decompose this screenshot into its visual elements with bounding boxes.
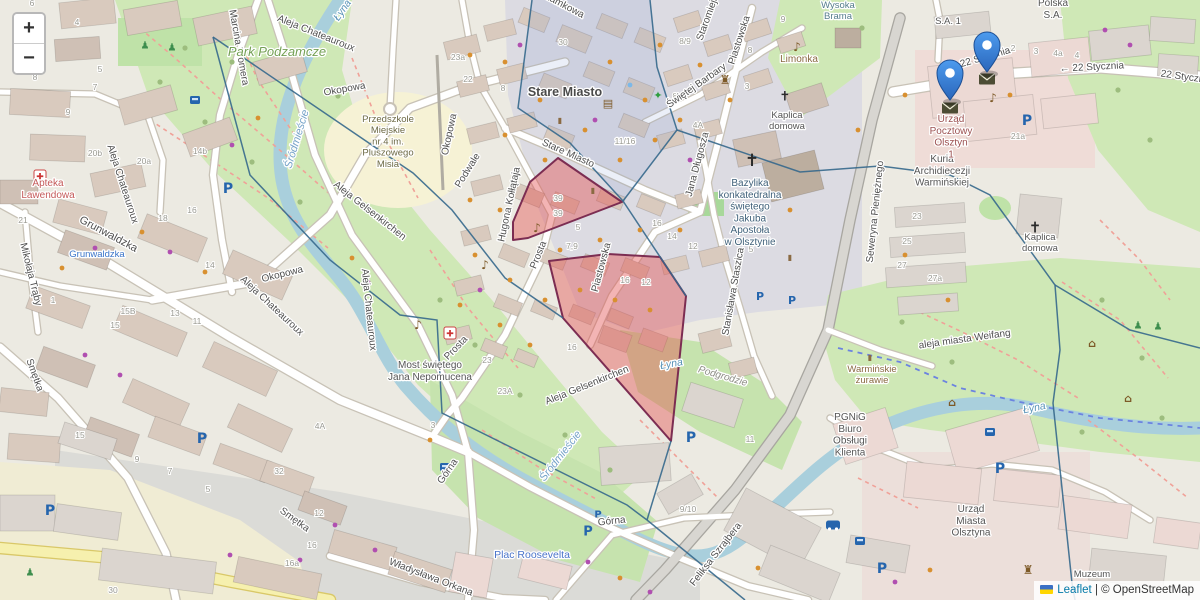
poi-dot bbox=[298, 558, 303, 563]
poi-dot bbox=[643, 98, 648, 103]
bus-stop-icon bbox=[192, 98, 198, 100]
poi-dot bbox=[648, 308, 653, 313]
zoom-out-button[interactable]: − bbox=[14, 44, 44, 73]
tree-dot bbox=[472, 342, 477, 347]
poi-dot bbox=[758, 228, 763, 233]
poi-dot bbox=[586, 560, 591, 565]
poi-dot bbox=[93, 246, 98, 251]
tree-dot bbox=[899, 319, 904, 324]
poi-dot bbox=[856, 128, 861, 133]
bus-stop-icon bbox=[442, 465, 448, 467]
tree-dot bbox=[949, 359, 954, 364]
poi-dot bbox=[1103, 28, 1108, 33]
tree-dot bbox=[437, 297, 442, 302]
poi-dot bbox=[903, 253, 908, 258]
poi-dot bbox=[468, 53, 473, 58]
poi-dot bbox=[458, 303, 463, 308]
car-sharing-icon bbox=[835, 527, 838, 530]
tree-dot bbox=[562, 432, 567, 437]
map-canvas[interactable]: ♪♪♪♪♪▤♜♜✝✝✝▮▮▮▮⌂⌂⌂♟♟♟♟♟✦PPPPPPPPPPP✚✚645… bbox=[0, 0, 1200, 600]
poi-dot bbox=[60, 266, 65, 271]
poi-dot bbox=[538, 98, 543, 103]
building bbox=[9, 88, 70, 117]
building bbox=[7, 433, 61, 463]
poi-dot bbox=[503, 133, 508, 138]
building bbox=[0, 180, 38, 204]
poi-dot bbox=[573, 88, 578, 93]
poi-dot bbox=[518, 43, 523, 48]
poi-dot bbox=[468, 198, 473, 203]
marker-shadow bbox=[943, 99, 961, 106]
openstreetmap-link[interactable]: © OpenStreetMap bbox=[1101, 584, 1194, 596]
poi-dot bbox=[140, 230, 145, 235]
tree-dot bbox=[1159, 415, 1164, 420]
poi-dot bbox=[756, 566, 761, 571]
poi-dot bbox=[1008, 93, 1013, 98]
roundabout bbox=[384, 103, 396, 115]
poi-dot bbox=[168, 250, 173, 255]
tree-dot bbox=[1079, 429, 1084, 434]
poi-dot bbox=[903, 93, 908, 98]
attribution-separator: | bbox=[1092, 584, 1101, 596]
marker-shadow bbox=[980, 71, 998, 78]
poi-dot bbox=[698, 63, 703, 68]
tree-dot bbox=[297, 199, 302, 204]
building bbox=[1041, 93, 1099, 129]
poi-dot bbox=[230, 143, 235, 148]
building bbox=[0, 495, 55, 531]
poi-dot bbox=[83, 353, 88, 358]
building bbox=[1089, 25, 1152, 61]
tree-dot bbox=[859, 25, 864, 30]
poi-dot bbox=[578, 288, 583, 293]
poi-dot bbox=[498, 323, 503, 328]
first-aid-icon bbox=[444, 327, 456, 339]
poi-dot bbox=[788, 208, 793, 213]
building bbox=[1016, 194, 1062, 238]
poi-dot bbox=[728, 98, 733, 103]
poi-dot bbox=[543, 298, 548, 303]
poi-dot bbox=[366, 280, 371, 285]
tree-dot bbox=[202, 119, 207, 124]
poi-dot bbox=[473, 253, 478, 258]
building bbox=[835, 28, 861, 48]
poi-dot bbox=[593, 118, 598, 123]
poi-dot bbox=[503, 60, 508, 65]
building bbox=[994, 469, 1062, 508]
tree-dot bbox=[229, 59, 234, 64]
poi-dot bbox=[688, 158, 693, 163]
tree-dot bbox=[157, 79, 162, 84]
tree-dot bbox=[1099, 297, 1104, 302]
tree-dot bbox=[1115, 87, 1120, 92]
tree-dot bbox=[249, 159, 254, 164]
building bbox=[1149, 16, 1196, 43]
poi-dot bbox=[203, 270, 208, 275]
poi-dot bbox=[333, 523, 338, 528]
poi-dot bbox=[946, 298, 951, 303]
poi-dot bbox=[478, 288, 483, 293]
tree-dot bbox=[517, 392, 522, 397]
poi-dot bbox=[118, 373, 123, 378]
poi-dot bbox=[508, 278, 513, 283]
poi-dot bbox=[256, 116, 261, 121]
zoom-in-button[interactable]: + bbox=[14, 14, 44, 43]
poi-dot bbox=[558, 248, 563, 253]
building bbox=[1028, 37, 1091, 77]
building bbox=[0, 388, 49, 417]
poi-dot bbox=[653, 138, 658, 143]
building bbox=[599, 443, 671, 486]
building bbox=[903, 461, 981, 505]
tree-dot bbox=[1139, 355, 1144, 360]
zoom-control: + − bbox=[12, 12, 46, 75]
marker-pin-hole bbox=[945, 68, 955, 78]
tree-dot bbox=[335, 93, 340, 98]
poi-dot bbox=[598, 238, 603, 243]
poi-dot bbox=[498, 208, 503, 213]
map-svg-layer: ♪♪♪♪♪▤♜♜✝✝✝▮▮▮▮⌂⌂⌂♟♟♟♟♟✦PPPPPPPPPPP✚✚645… bbox=[0, 0, 1200, 600]
poi-dot bbox=[1128, 43, 1133, 48]
building bbox=[1157, 54, 1198, 79]
poi-dot bbox=[658, 43, 663, 48]
building bbox=[449, 552, 493, 598]
bus-stop-icon bbox=[987, 430, 993, 432]
bus-stop-icon bbox=[857, 539, 863, 541]
poi-dot bbox=[373, 548, 378, 553]
poi-dot bbox=[628, 83, 633, 88]
tree-dot bbox=[1147, 137, 1152, 142]
marker-pin-hole bbox=[982, 40, 992, 50]
pharmacy-icon bbox=[34, 170, 46, 182]
tree-dot bbox=[607, 467, 612, 472]
building bbox=[897, 293, 958, 315]
building bbox=[963, 94, 1037, 141]
car-sharing-icon bbox=[828, 527, 831, 530]
poi-dot bbox=[608, 60, 613, 65]
ukraine-flag-icon bbox=[1040, 585, 1053, 594]
poi-dot bbox=[678, 228, 683, 233]
poi-dot bbox=[678, 118, 683, 123]
tree-dot bbox=[182, 45, 187, 50]
attribution-bar: Leaflet | © OpenStreetMap bbox=[1034, 581, 1200, 600]
poi-dot bbox=[638, 228, 643, 233]
leaflet-link[interactable]: Leaflet bbox=[1057, 584, 1092, 596]
poi-dot bbox=[893, 580, 898, 585]
poi-dot bbox=[428, 438, 433, 443]
poi-dot bbox=[350, 256, 355, 261]
poi-dot bbox=[648, 590, 653, 595]
building bbox=[54, 36, 100, 61]
poi-dot bbox=[228, 553, 233, 558]
building bbox=[30, 134, 86, 162]
poi-dot bbox=[618, 576, 623, 581]
car-sharing-icon bbox=[826, 521, 840, 530]
poi-dot bbox=[543, 158, 548, 163]
poi-dot bbox=[583, 128, 588, 133]
poi-dot bbox=[613, 298, 618, 303]
poi-dot bbox=[618, 158, 623, 163]
poi-dot bbox=[528, 343, 533, 348]
poi-dot bbox=[928, 568, 933, 573]
